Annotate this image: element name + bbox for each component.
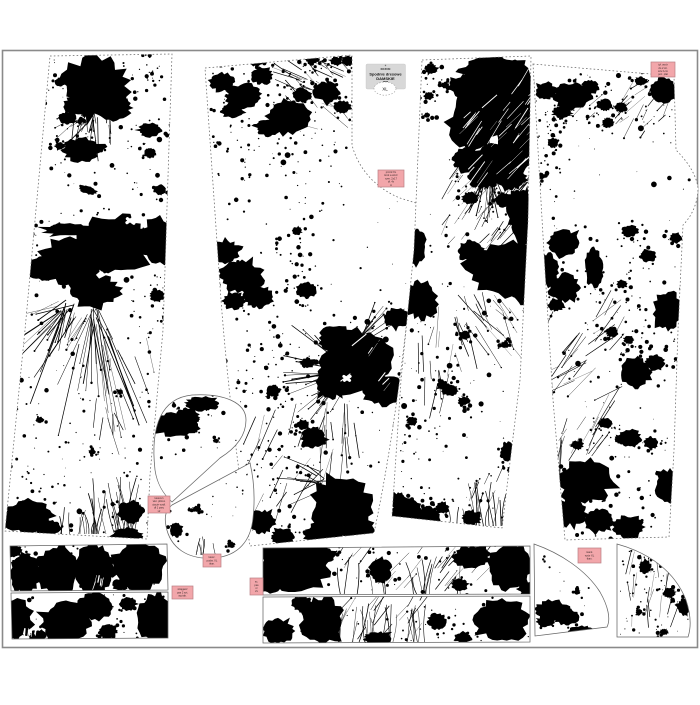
svg-text:XL: XL [382, 86, 388, 91]
svg-text:tkan.: tkan. [587, 557, 593, 561]
svg-text:poz. płat: poz. płat [658, 72, 668, 76]
svg-text:wg tab.: wg tab. [178, 594, 187, 598]
svg-text:DAMSKIE: DAMSKIE [376, 76, 395, 81]
svg-text:A: A [390, 183, 392, 187]
svg-text:tkan.: tkan. [209, 562, 215, 566]
